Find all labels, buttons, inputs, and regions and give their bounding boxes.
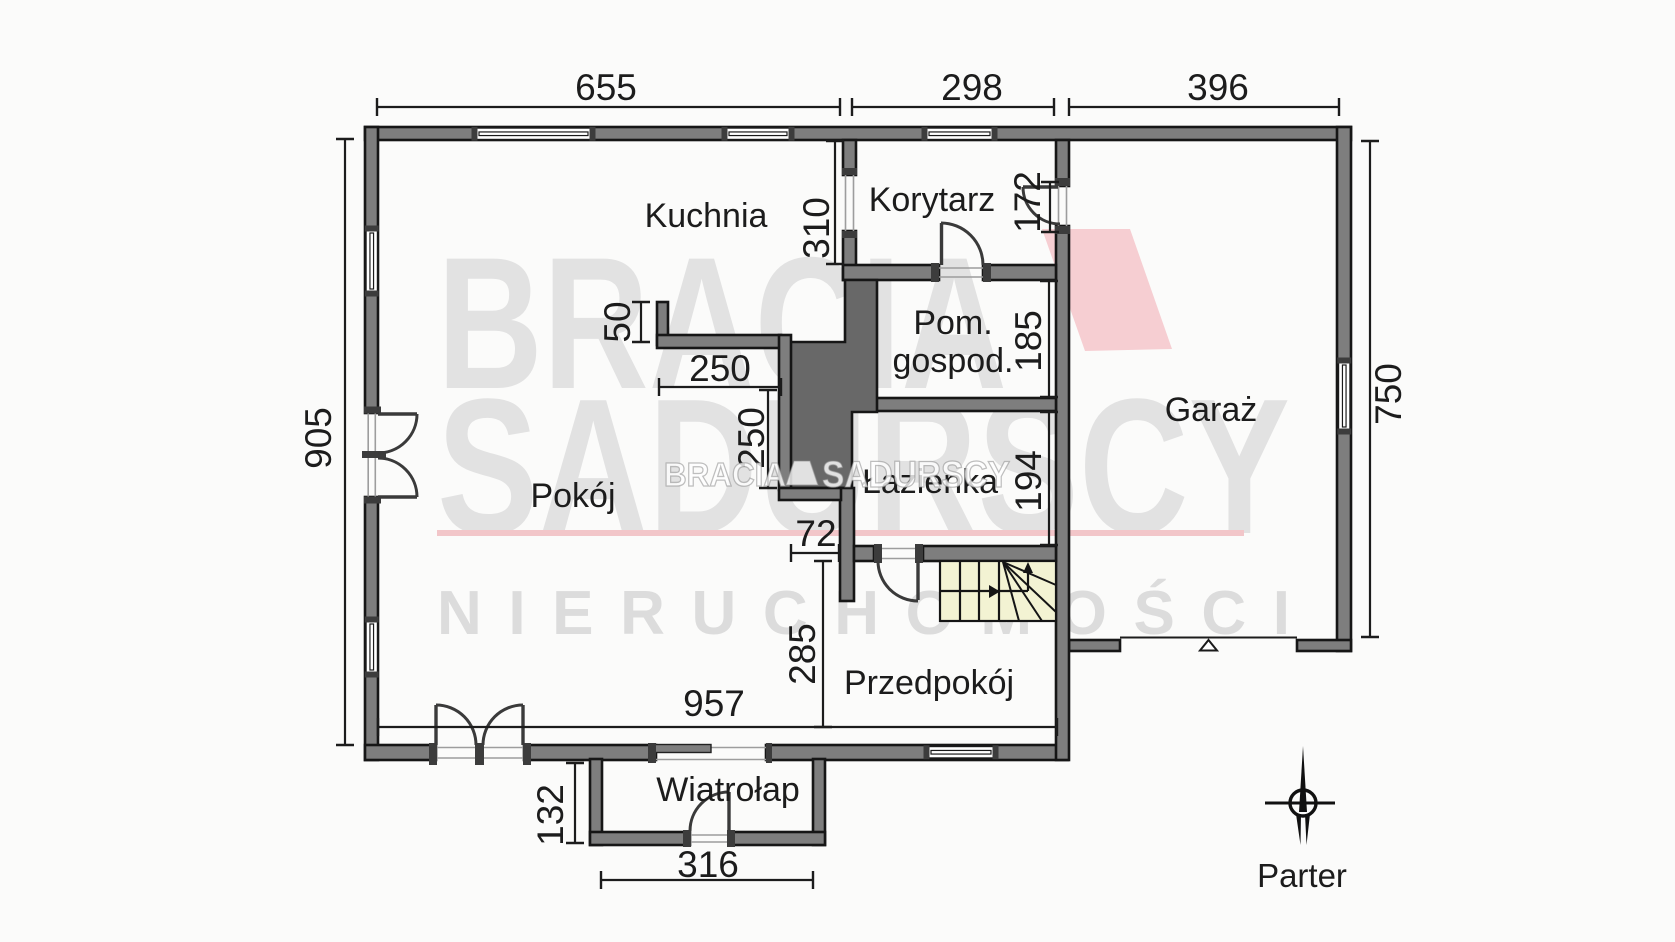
svg-text:Kuchnia: Kuchnia — [645, 197, 768, 235]
svg-text:Pokój: Pokój — [530, 477, 615, 515]
svg-text:132: 132 — [530, 784, 571, 846]
svg-text:Pom.: Pom. — [913, 304, 992, 342]
svg-text:Wiatrołap: Wiatrołap — [656, 771, 800, 809]
svg-text:316: 316 — [677, 844, 739, 885]
svg-text:250: 250 — [689, 348, 751, 389]
svg-text:298: 298 — [941, 67, 1003, 108]
svg-text:Garaż: Garaż — [1165, 391, 1258, 429]
svg-text:310: 310 — [796, 197, 837, 259]
svg-text:Przedpokój: Przedpokój — [844, 664, 1014, 702]
svg-text:BRACIA: BRACIA — [664, 456, 786, 493]
svg-text:655: 655 — [575, 67, 637, 108]
svg-text:396: 396 — [1187, 67, 1249, 108]
svg-text:285: 285 — [782, 623, 823, 685]
svg-text:194: 194 — [1008, 450, 1049, 512]
svg-text:Korytarz: Korytarz — [869, 181, 996, 219]
svg-text:50: 50 — [597, 301, 638, 342]
svg-text:72: 72 — [795, 513, 836, 554]
svg-text:Parter: Parter — [1257, 857, 1347, 894]
svg-text:SADURSCY: SADURSCY — [822, 454, 1010, 495]
svg-text:172: 172 — [1007, 171, 1048, 233]
svg-text:905: 905 — [298, 407, 339, 469]
svg-text:957: 957 — [683, 683, 745, 724]
svg-text:750: 750 — [1368, 363, 1409, 425]
svg-text:185: 185 — [1008, 310, 1049, 372]
svg-text:gospod.: gospod. — [893, 342, 1014, 380]
